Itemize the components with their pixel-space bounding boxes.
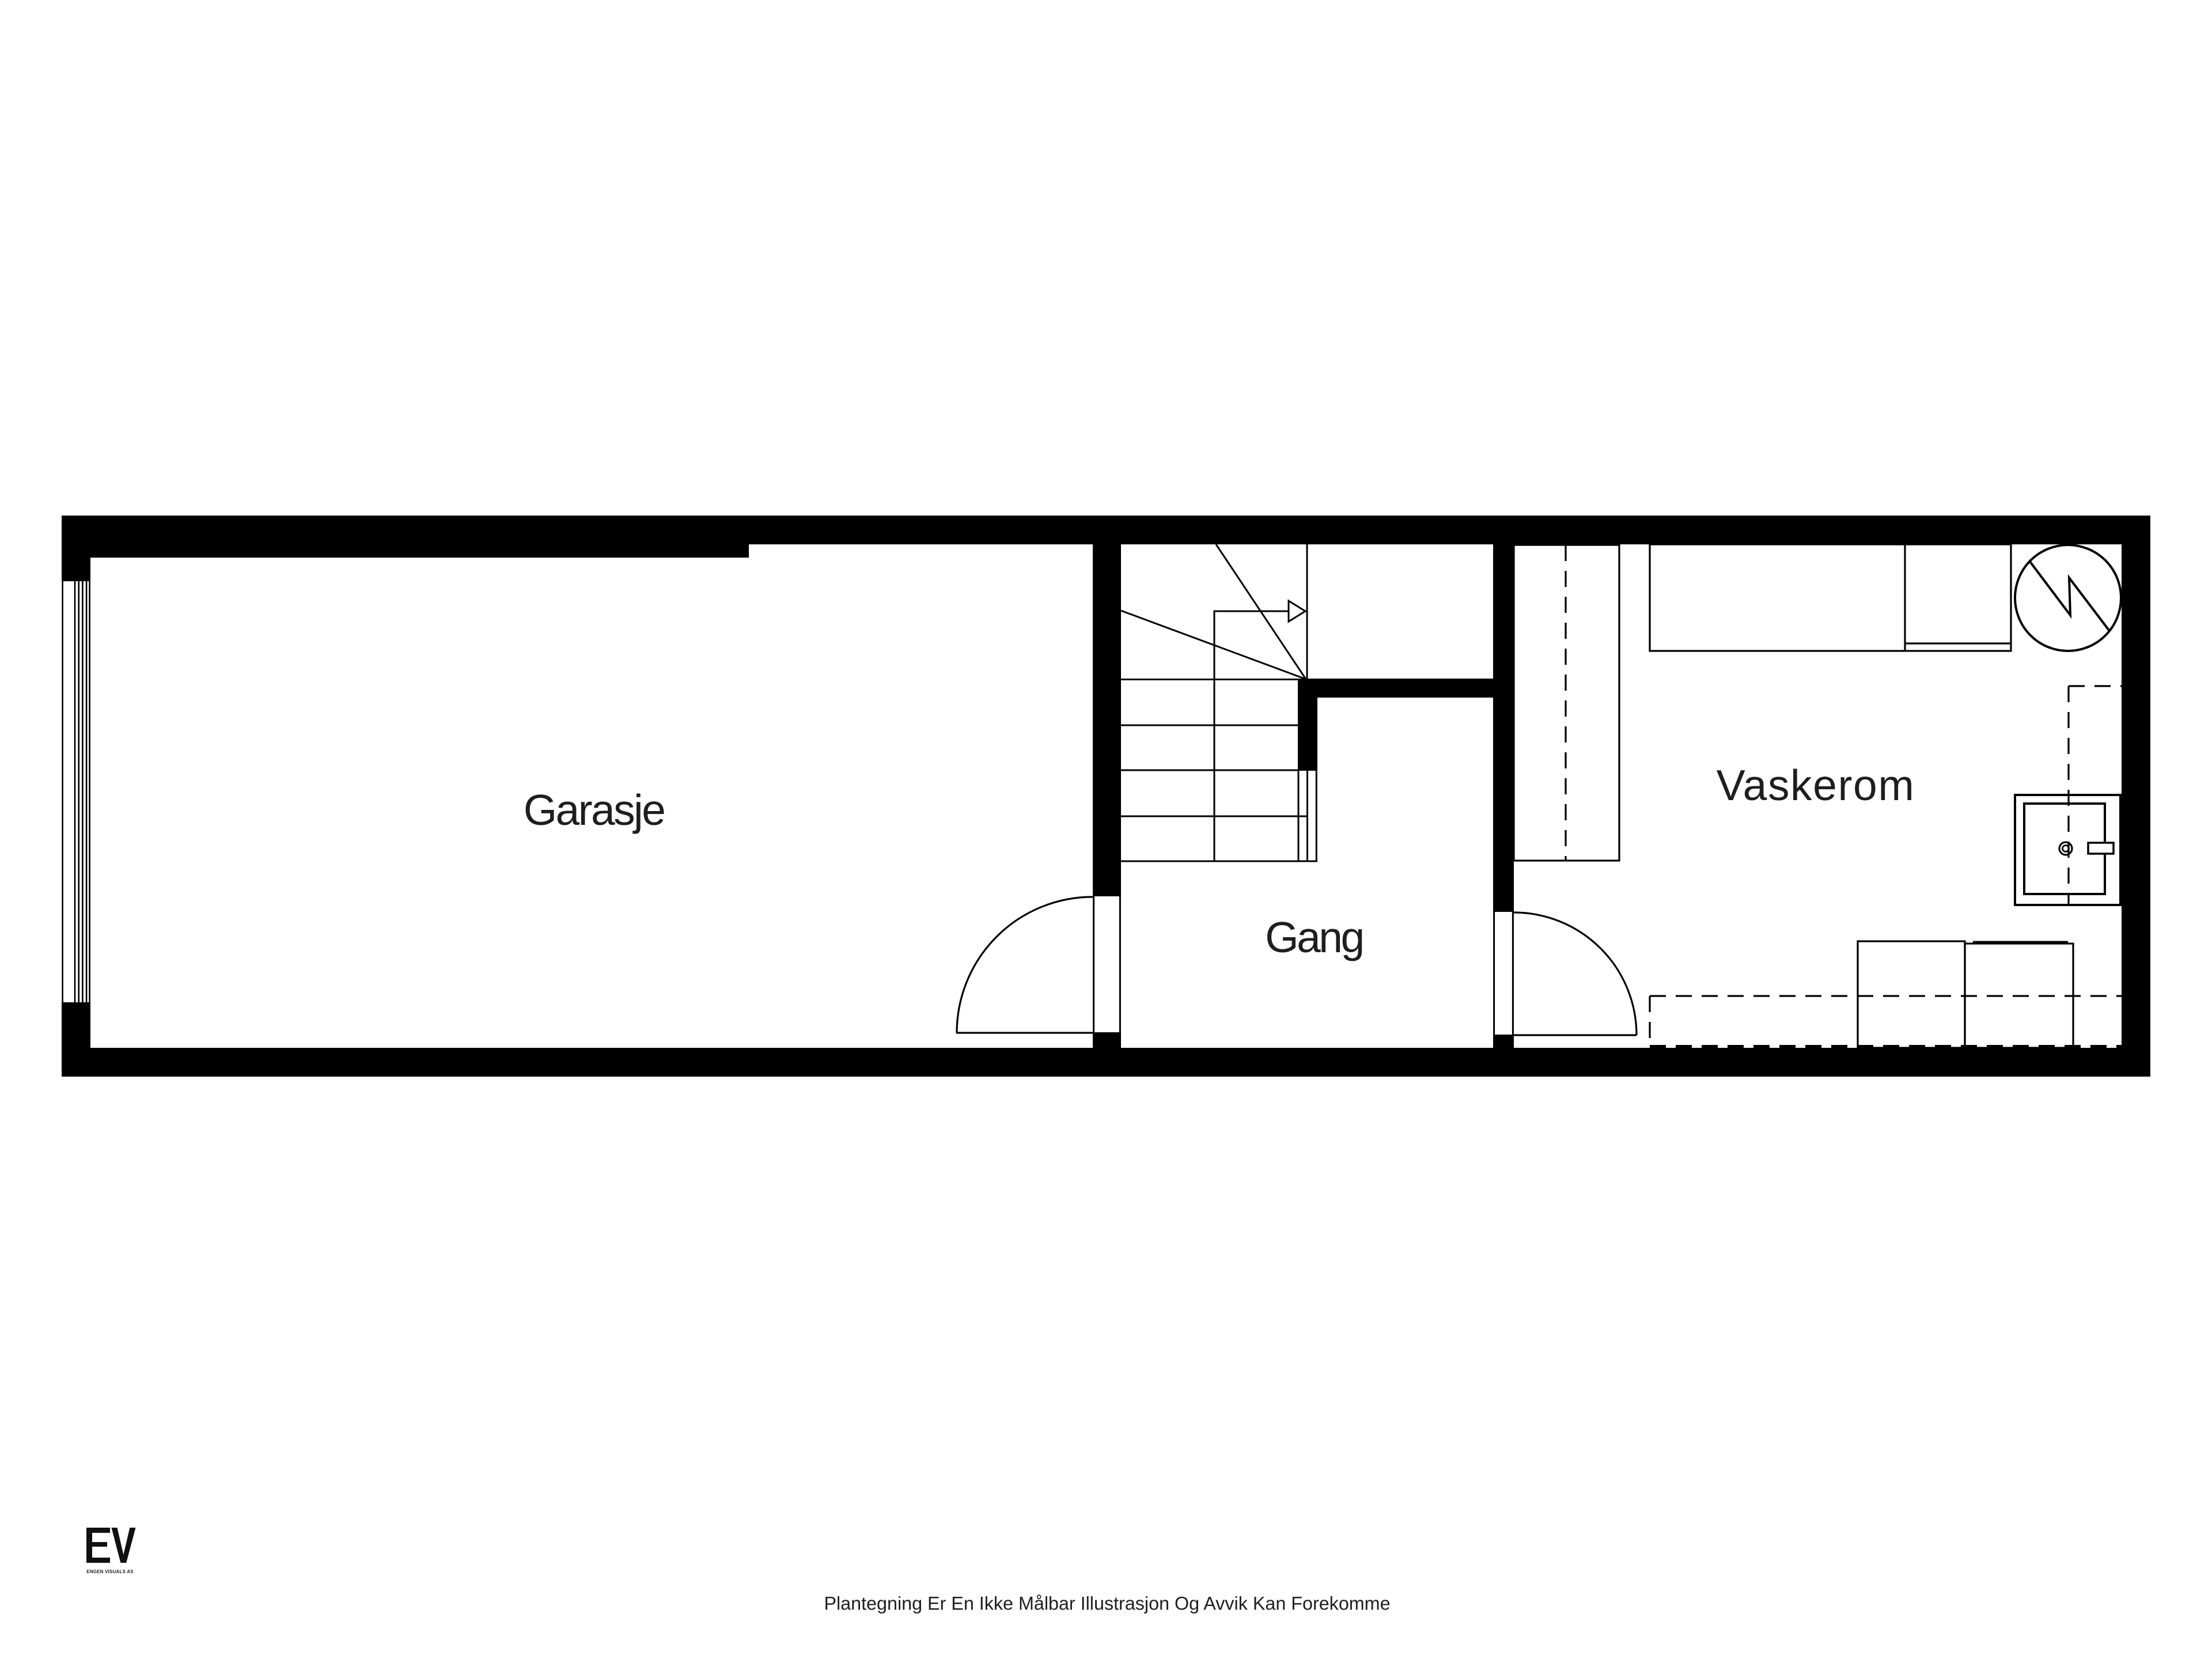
svg-text:ENGEN VISUALS AS: ENGEN VISUALS AS [86, 1569, 134, 1574]
svg-text:Gang: Gang [1265, 913, 1362, 961]
svg-text:Plantegning Er En Ikke Målbar: Plantegning Er En Ikke Målbar Illustrasj… [824, 1593, 1390, 1614]
svg-text:Garasje: Garasje [524, 786, 664, 834]
svg-text:Vaskerom: Vaskerom [1717, 761, 1915, 809]
